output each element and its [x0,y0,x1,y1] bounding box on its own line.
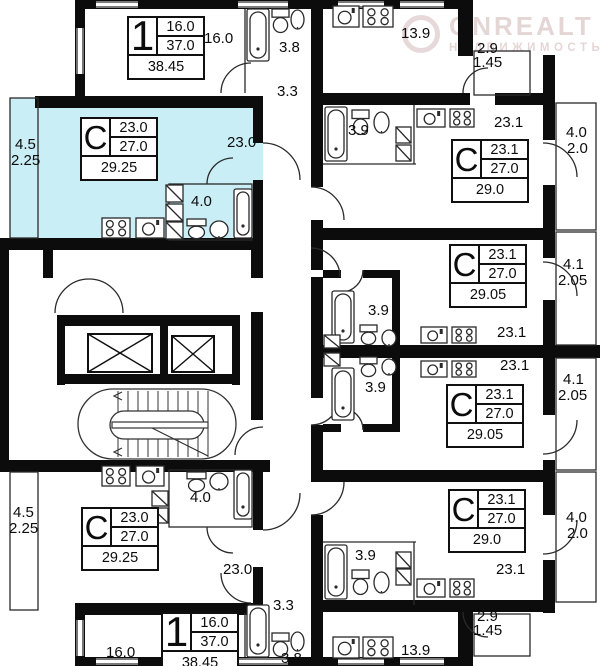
unit-area-total: 29.25 [83,547,157,569]
unit-card-apt1-top[interactable]: 116.037.038.45 [127,16,205,80]
area-label-studio-bl-room: 23.0 [223,561,252,578]
area-label-r2-balc-1: 4.1 [563,256,584,273]
kitchen-sink-icon [421,327,447,343]
unit-area-2: 27.0 [480,265,525,284]
window-line [76,28,84,74]
area-label-apt1-bot-room: 16.0 [106,644,135,661]
window-line [338,658,384,665]
sink-icon [210,221,228,238]
area-label-hall-bot: 3.3 [273,597,294,614]
unit-type: С [453,141,482,179]
area-label-r2-balc-2: 2.05 [558,272,587,289]
area-label-studio-tl-room: 23.0 [227,134,256,151]
bathtub-icon [247,605,269,657]
unit-type: С [448,386,477,424]
area-label-r3-balc-2: 2.05 [558,387,587,404]
toilet-icon [187,219,206,239]
door-arc [89,279,123,313]
area-label-r4-room: 23.1 [496,561,525,578]
unit-area-total: 29.0 [450,529,524,551]
door-arc [311,248,340,277]
area-label-studio-tl-bath: 4.0 [191,193,212,210]
unit-card-studio-tl[interactable]: С23.027.029.25 [80,117,158,181]
area-label-r3-room: 23.1 [500,357,529,374]
kitchen-sink-icon [136,218,164,238]
area-label-r1-room: 23.1 [494,114,523,131]
unit-area-total: 29.0 [453,179,527,201]
area-label-bath-bot: 3.8 [281,650,302,666]
bathtub-icon [234,470,252,519]
toilet-icon [272,9,289,33]
unit-area-total: 38.45 [129,56,203,78]
sink-icon [291,632,304,651]
unit-type: 1 [163,614,192,652]
door-arc [543,420,577,454]
sink-icon [382,330,396,346]
unit-area-1: 23.1 [479,491,524,510]
area-label-balcony-tl-1: 4.5 [15,136,36,153]
area-label-hall-top: 3.3 [277,83,298,100]
area-label-r1-balc-2: 2.0 [567,140,588,157]
area-label-r3-balc-1: 4.1 [563,371,584,388]
stove-icon [363,637,393,658]
unit-type: С [450,491,479,529]
area-label-balcony-tl-2: 2.25 [11,152,40,169]
stove-icon [450,579,474,597]
unit-area-2: 27.0 [479,510,524,529]
area-label-bath-top: 3.8 [279,39,300,56]
toilet-icon [360,325,377,345]
area-label-r4-bath: 3.9 [355,547,376,564]
elevator-icon [172,336,214,372]
door-arc [207,527,233,553]
unit-area-total: 29.25 [82,157,156,179]
shaft-icon [396,145,411,161]
floor-plan: ONREALT НЕДВИЖИМОСТЬ 16.03.83.313.92.91.… [0,0,600,666]
bathtub-icon [325,107,347,161]
unit-area-2: 27.0 [111,138,156,157]
area-label-kitchen-top: 13.9 [401,25,430,42]
stove-icon [363,6,393,27]
unit-area-2: 27.0 [482,160,527,179]
unit-area-2: 37.0 [192,633,237,652]
area-label-mid-bath-bot: 3.9 [365,379,386,396]
shaft-icon [152,491,168,506]
shaft-icon [396,127,411,143]
door-arc [263,143,300,180]
window-line [400,658,444,665]
door-arc [221,63,251,93]
staircase-icon [78,389,236,459]
unit-card-studio-r2[interactable]: С23.127.029.05 [449,244,527,308]
shaft-icon [396,569,411,585]
kitchen-sink-icon [136,466,164,486]
unit-type: С [83,509,112,547]
sink-icon [210,473,228,490]
door-arc [311,187,344,220]
unit-area-total: 38.45 [163,652,237,666]
unit-area-2: 37.0 [158,37,203,56]
shaft-icon [324,335,340,348]
area-label-r2-room: 23.1 [497,324,526,341]
bathtub-icon [247,9,269,61]
bathtub-icon [325,545,347,599]
unit-card-studio-r4[interactable]: С23.127.029.0 [448,489,526,553]
unit-area-1: 16.0 [158,18,203,37]
area-label-r1-bath: 3.9 [348,122,369,139]
sink-icon [291,10,304,29]
area-label-loggia-bot-2: 1.45 [473,622,502,639]
stove-icon [450,109,474,127]
door-arc [341,270,363,292]
sink-icon [374,112,389,133]
window-line [96,1,138,8]
unit-area-1: 23.1 [480,246,525,265]
unit-area-1: 23.0 [111,119,156,138]
door-arc [311,482,344,515]
shaft-icon [166,185,183,202]
unit-type: С [451,246,480,284]
stove-icon [102,218,130,238]
unit-card-studio-r3[interactable]: С23.127.029.05 [446,384,524,448]
unit-card-studio-bl[interactable]: С23.027.029.25 [81,507,159,571]
unit-type: С [82,119,111,157]
door-arc [207,158,233,184]
shaft-icon [166,204,183,221]
unit-area-1: 23.0 [112,509,157,528]
unit-area-1: 23.1 [477,386,522,405]
area-label-balcony-bl-2: 2.25 [9,520,38,537]
unit-area-1: 23.1 [482,141,527,160]
area-label-apt1-top-room: 16.0 [204,30,233,47]
door-arc [235,427,263,455]
unit-card-apt1-bottom[interactable]: 116.037.038.45 [161,612,239,666]
unit-area-2: 27.0 [477,405,522,424]
kitchen-sink-icon [417,579,445,597]
sink-icon [382,359,396,375]
toilet-icon [352,570,369,595]
unit-area-total: 29.05 [451,284,525,306]
shaft-icon [396,552,411,568]
stove-icon [102,466,130,486]
door-arc [55,279,89,313]
shaft-icon [324,353,340,366]
bathtub-icon [332,368,354,420]
unit-area-2: 27.0 [112,528,157,547]
elevator-icon [88,334,152,372]
balcony-outline [10,472,38,610]
window-line [400,1,444,8]
stove-icon [452,327,476,343]
toilet-icon [360,357,377,377]
unit-card-studio-r1[interactable]: С23.127.029.0 [451,139,529,203]
kitchen-sink-icon [333,6,359,27]
unit-area-1: 16.0 [192,614,237,633]
unit-area-total: 29.05 [448,424,522,446]
area-label-r4-balc-1: 4.0 [566,509,587,526]
door-arc [463,68,488,93]
area-label-balcony-bl-1: 4.5 [13,504,34,521]
shaft-icon [166,222,183,239]
area-label-kitchen-bot: 13.9 [401,642,430,659]
window-line [238,1,288,8]
area-label-r1-balc-1: 4.0 [566,124,587,141]
kitchen-sink-icon [421,361,447,377]
area-label-studio-bl-bath: 4.0 [190,489,211,506]
kitchen-sink-icon [333,637,359,658]
unit-type: 1 [129,18,158,56]
door-arc [263,493,300,530]
sink-icon [374,572,389,593]
window-line [76,620,84,656]
area-label-loggia-top-2: 1.45 [473,54,502,71]
kitchen-sink-icon [417,109,445,127]
area-label-mid-bath-top: 3.9 [368,302,389,319]
bathtub-icon [234,189,252,238]
stove-icon [452,361,476,377]
area-label-r4-balc-2: 2.0 [567,525,588,542]
